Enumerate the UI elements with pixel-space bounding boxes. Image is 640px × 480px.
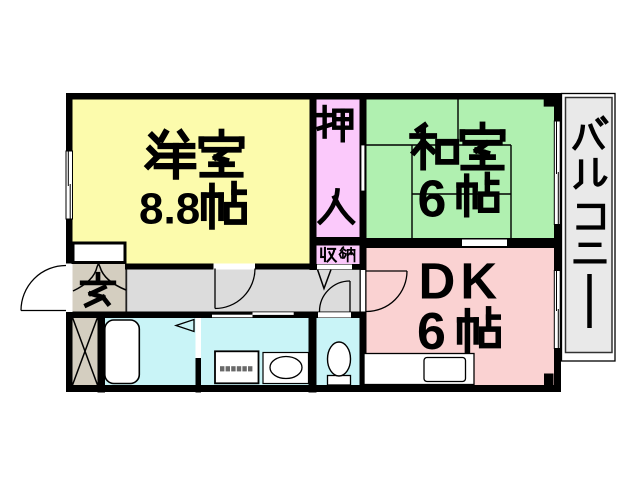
svg-text:6: 6 [418, 171, 447, 229]
svg-text:8.8: 8.8 [139, 185, 200, 234]
svg-text:DK: DK [419, 253, 503, 310]
svg-text:6: 6 [417, 303, 446, 361]
